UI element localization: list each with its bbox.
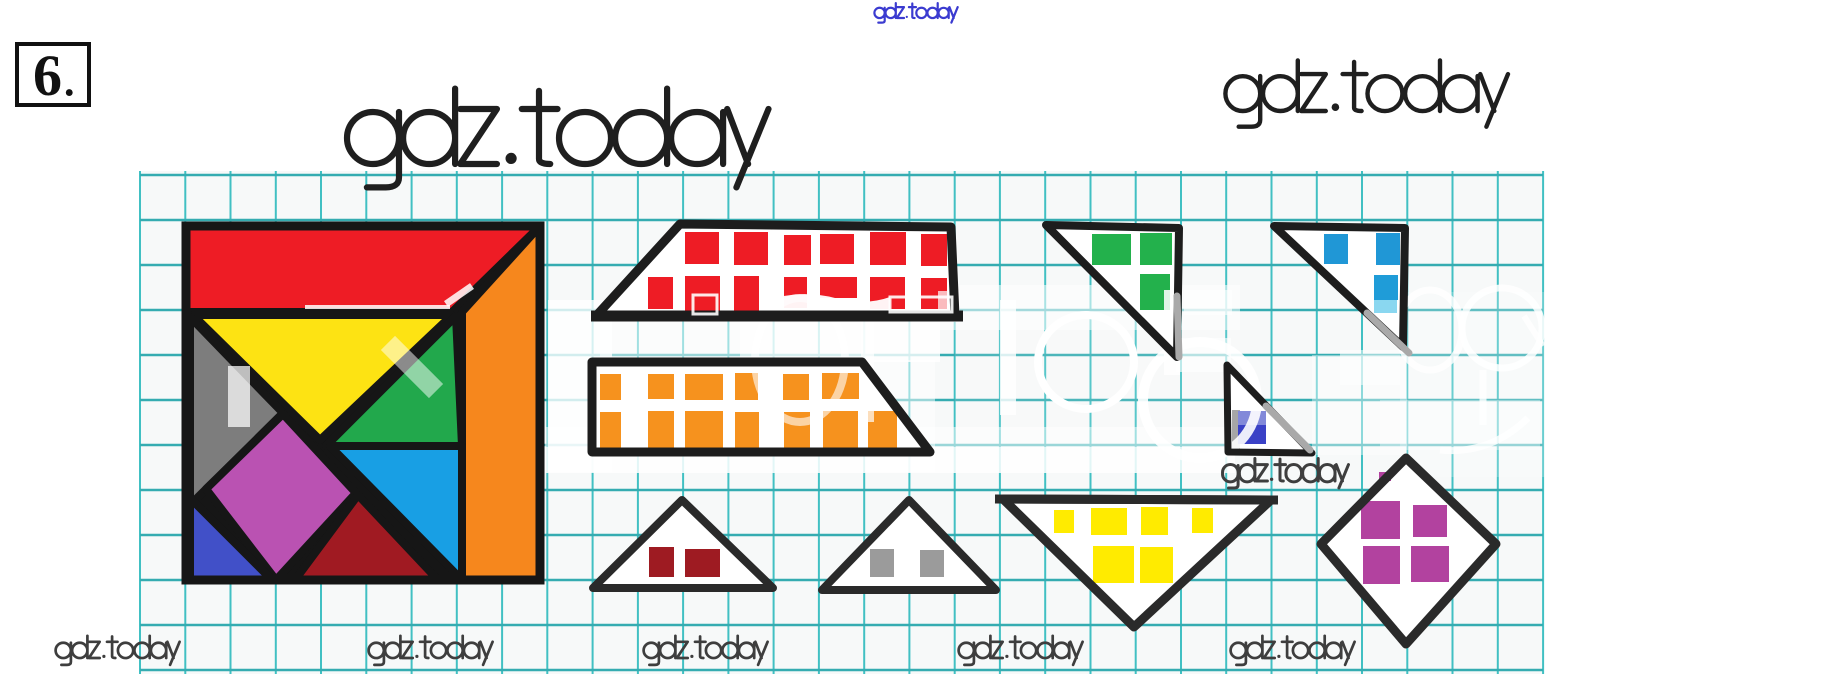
svg-text:6.: 6. (33, 43, 77, 108)
